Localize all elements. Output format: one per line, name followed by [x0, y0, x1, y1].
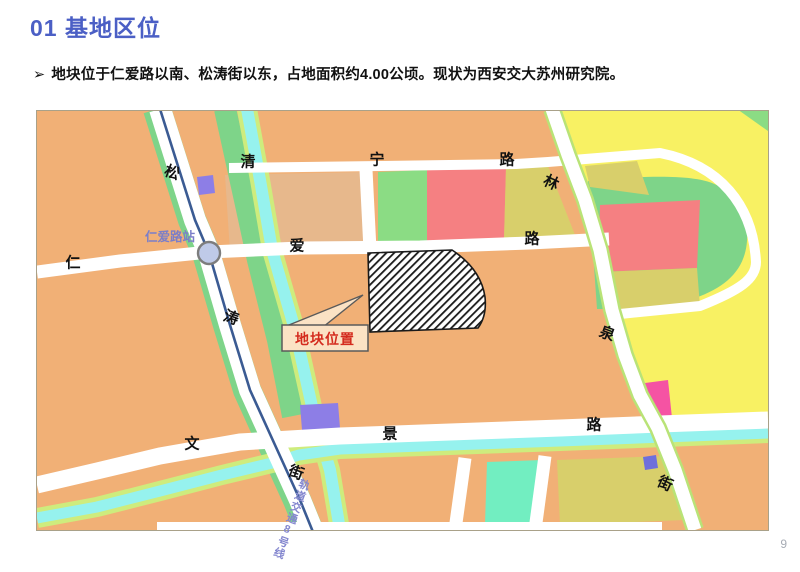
street-label-wenjing-1: 文 — [184, 435, 200, 453]
street-label-qingning-3: 路 — [499, 151, 515, 169]
site-plot-hatched — [368, 250, 485, 332]
street-label-renai-1: 仁 — [65, 254, 80, 272]
zone-green-block — [378, 170, 427, 245]
page-title: 01 基地区位 — [30, 9, 161, 43]
zone-pink-block-east — [598, 200, 700, 272]
zone-purple-block-south — [300, 403, 340, 430]
page-number: 9 — [780, 537, 787, 551]
bullet-arrow-icon: ➢ — [33, 67, 45, 83]
street-label-renai-2: 爱 — [289, 237, 304, 255]
metro-station-marker — [198, 242, 220, 264]
bullet-text-line: ➢地块位于仁爱路以南、松涛街以东，占地面积约4.00公顷。现状为西安交大苏州研究… — [33, 63, 624, 84]
road-bottom-sliver — [157, 522, 662, 530]
street-label-qingning-1: 清 — [240, 153, 255, 171]
street-label-wenjing-2: 景 — [382, 425, 397, 443]
street-label-renai-3: 路 — [524, 230, 540, 248]
road-connector-north — [366, 170, 370, 250]
zone-blue-square — [643, 455, 658, 470]
zone-purple-square-north — [197, 175, 215, 195]
street-label-qingning-2: 宁 — [369, 151, 384, 169]
callout-label: 地块位置 — [295, 331, 355, 347]
street-label-wenjing-3: 路 — [586, 416, 602, 434]
site-location-map: 仁爱路站 地块位置 清 宁 路 仁 爱 路 文 景 路 松 涛 街 林 泉 街 — [37, 111, 768, 530]
zone-pink-block-west — [427, 166, 506, 243]
station-label: 仁爱路站 — [145, 229, 196, 244]
map-canvas: 仁爱路站 地块位置 清 宁 路 仁 爱 路 文 景 路 松 涛 街 林 泉 街 — [37, 111, 768, 530]
bullet-text: 地块位于仁爱路以南、松涛街以东，占地面积约4.00公顷。现状为西安交大苏州研究院… — [51, 67, 624, 83]
